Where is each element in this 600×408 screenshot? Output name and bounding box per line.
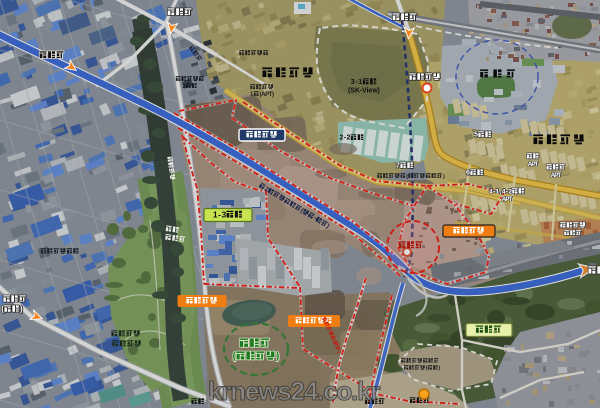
svg-text:(: (: [406, 174, 408, 180]
svg-text:1-3: 1-3: [213, 209, 227, 219]
svg-text:5: 5: [474, 132, 478, 139]
svg-text:2-2: 2-2: [340, 135, 351, 142]
svg-text:APT: APT: [528, 162, 539, 168]
svg-text:2: 2: [183, 84, 186, 90]
svg-text:3-1: 3-1: [351, 77, 363, 86]
svg-text:APT: APT: [551, 173, 562, 179]
svg-text:(SK-View): (SK-View): [348, 88, 380, 95]
svg-text:): ): [439, 366, 441, 372]
svg-text:APT: APT: [502, 197, 513, 203]
svg-text:(: (: [426, 366, 428, 372]
svg-text:krnews24.co.kr: krnews24.co.kr: [208, 376, 380, 406]
svg-text:6: 6: [466, 170, 470, 177]
svg-text:(APT): (APT): [260, 92, 275, 98]
svg-text:4-1,4-2: 4-1,4-2: [489, 188, 512, 195]
svg-text:): ): [20, 305, 23, 314]
svg-text:): ): [443, 174, 445, 180]
svg-text:(: (: [1, 305, 4, 314]
svg-text:7: 7: [396, 163, 400, 170]
svg-text:): ): [276, 351, 279, 362]
